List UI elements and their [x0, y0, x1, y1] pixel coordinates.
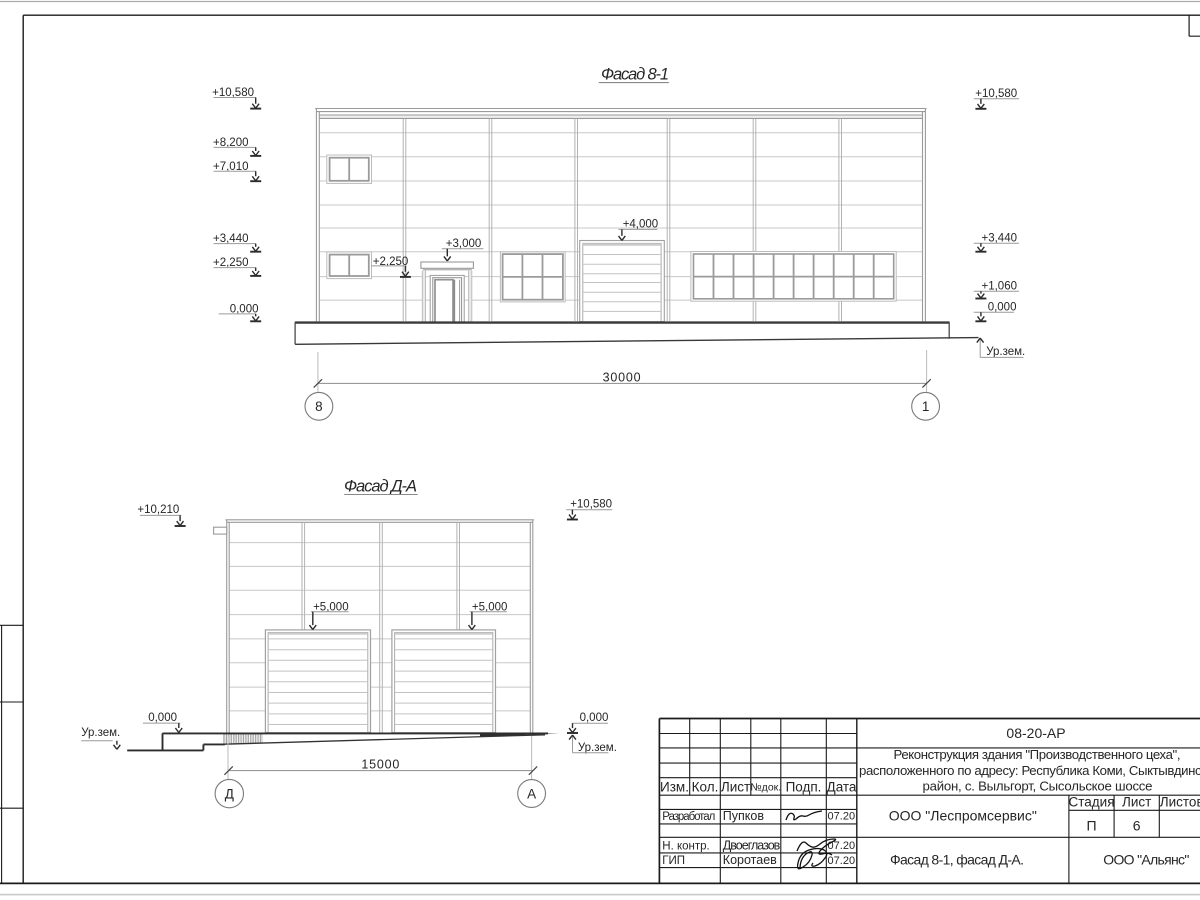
svg-text:ГИП: ГИП [662, 855, 685, 867]
svg-text:Кол.: Кол. [692, 779, 719, 794]
svg-text:расположенного по адресу: Респ: расположенного по адресу: Республика Ком… [859, 763, 1200, 778]
svg-text:Дата: Дата [827, 779, 857, 794]
svg-text:ООО "Альянс": ООО "Альянс" [1103, 851, 1189, 867]
svg-text:0,000: 0,000 [580, 712, 609, 724]
svg-text:1: 1 [922, 399, 930, 414]
svg-text:15000: 15000 [361, 758, 400, 772]
svg-text:ООО "Леспромсервис": ООО "Леспромсервис" [889, 807, 1037, 823]
svg-text:0,000: 0,000 [148, 712, 177, 724]
svg-text:+3,440: +3,440 [213, 233, 249, 245]
svg-text:Подп.: Подп. [786, 779, 822, 794]
svg-text:30000: 30000 [603, 371, 642, 385]
svg-text:6: 6 [1133, 818, 1141, 834]
svg-text:Ур.зем.: Ур.зем. [578, 742, 617, 754]
svg-text:№док.: №док. [750, 782, 781, 794]
svg-text:Фасад 8-1, фасад Д-А.: Фасад 8-1, фасад Д-А. [890, 851, 1024, 867]
svg-text:Стадия: Стадия [1068, 795, 1114, 810]
svg-text:Листов: Листов [1160, 795, 1200, 810]
svg-text:Лист: Лист [1122, 795, 1151, 810]
svg-text:+10,210: +10,210 [137, 504, 179, 516]
svg-text:Лист: Лист [721, 779, 750, 794]
svg-text:А: А [527, 787, 536, 802]
svg-text:Ур.зем.: Ур.зем. [986, 346, 1025, 358]
svg-text:8: 8 [315, 399, 323, 414]
svg-text:08-20-АР: 08-20-АР [1006, 725, 1065, 741]
svg-text:07.20: 07.20 [828, 855, 856, 867]
svg-text:Фасад 8-1: Фасад 8-1 [601, 66, 669, 84]
svg-text:Н. контр.: Н. контр. [662, 840, 709, 852]
svg-text:Ур.зем.: Ур.зем. [81, 727, 120, 739]
svg-text:район, с. Выльгорт, Сысольское: район, с. Выльгорт, Сысольское шоссе [923, 778, 1153, 793]
svg-text:Фасад Д-А: Фасад Д-А [344, 477, 417, 495]
svg-text:+10,580: +10,580 [570, 499, 612, 511]
svg-text:Разработал: Разработал [662, 811, 715, 823]
svg-text:07.20: 07.20 [828, 811, 856, 823]
svg-text:Пупков: Пупков [723, 809, 765, 823]
svg-text:Д: Д [225, 787, 234, 802]
svg-text:П: П [1086, 818, 1096, 834]
svg-text:Реконструкция здания "Производ: Реконструкция здания "Производственного … [894, 747, 1181, 762]
svg-text:Двоеглазов: Двоеглазов [723, 838, 781, 852]
svg-text:Коротаев: Коротаев [723, 853, 777, 867]
svg-text:Изм.: Изм. [660, 779, 689, 794]
svg-text:+10,580: +10,580 [975, 88, 1017, 100]
